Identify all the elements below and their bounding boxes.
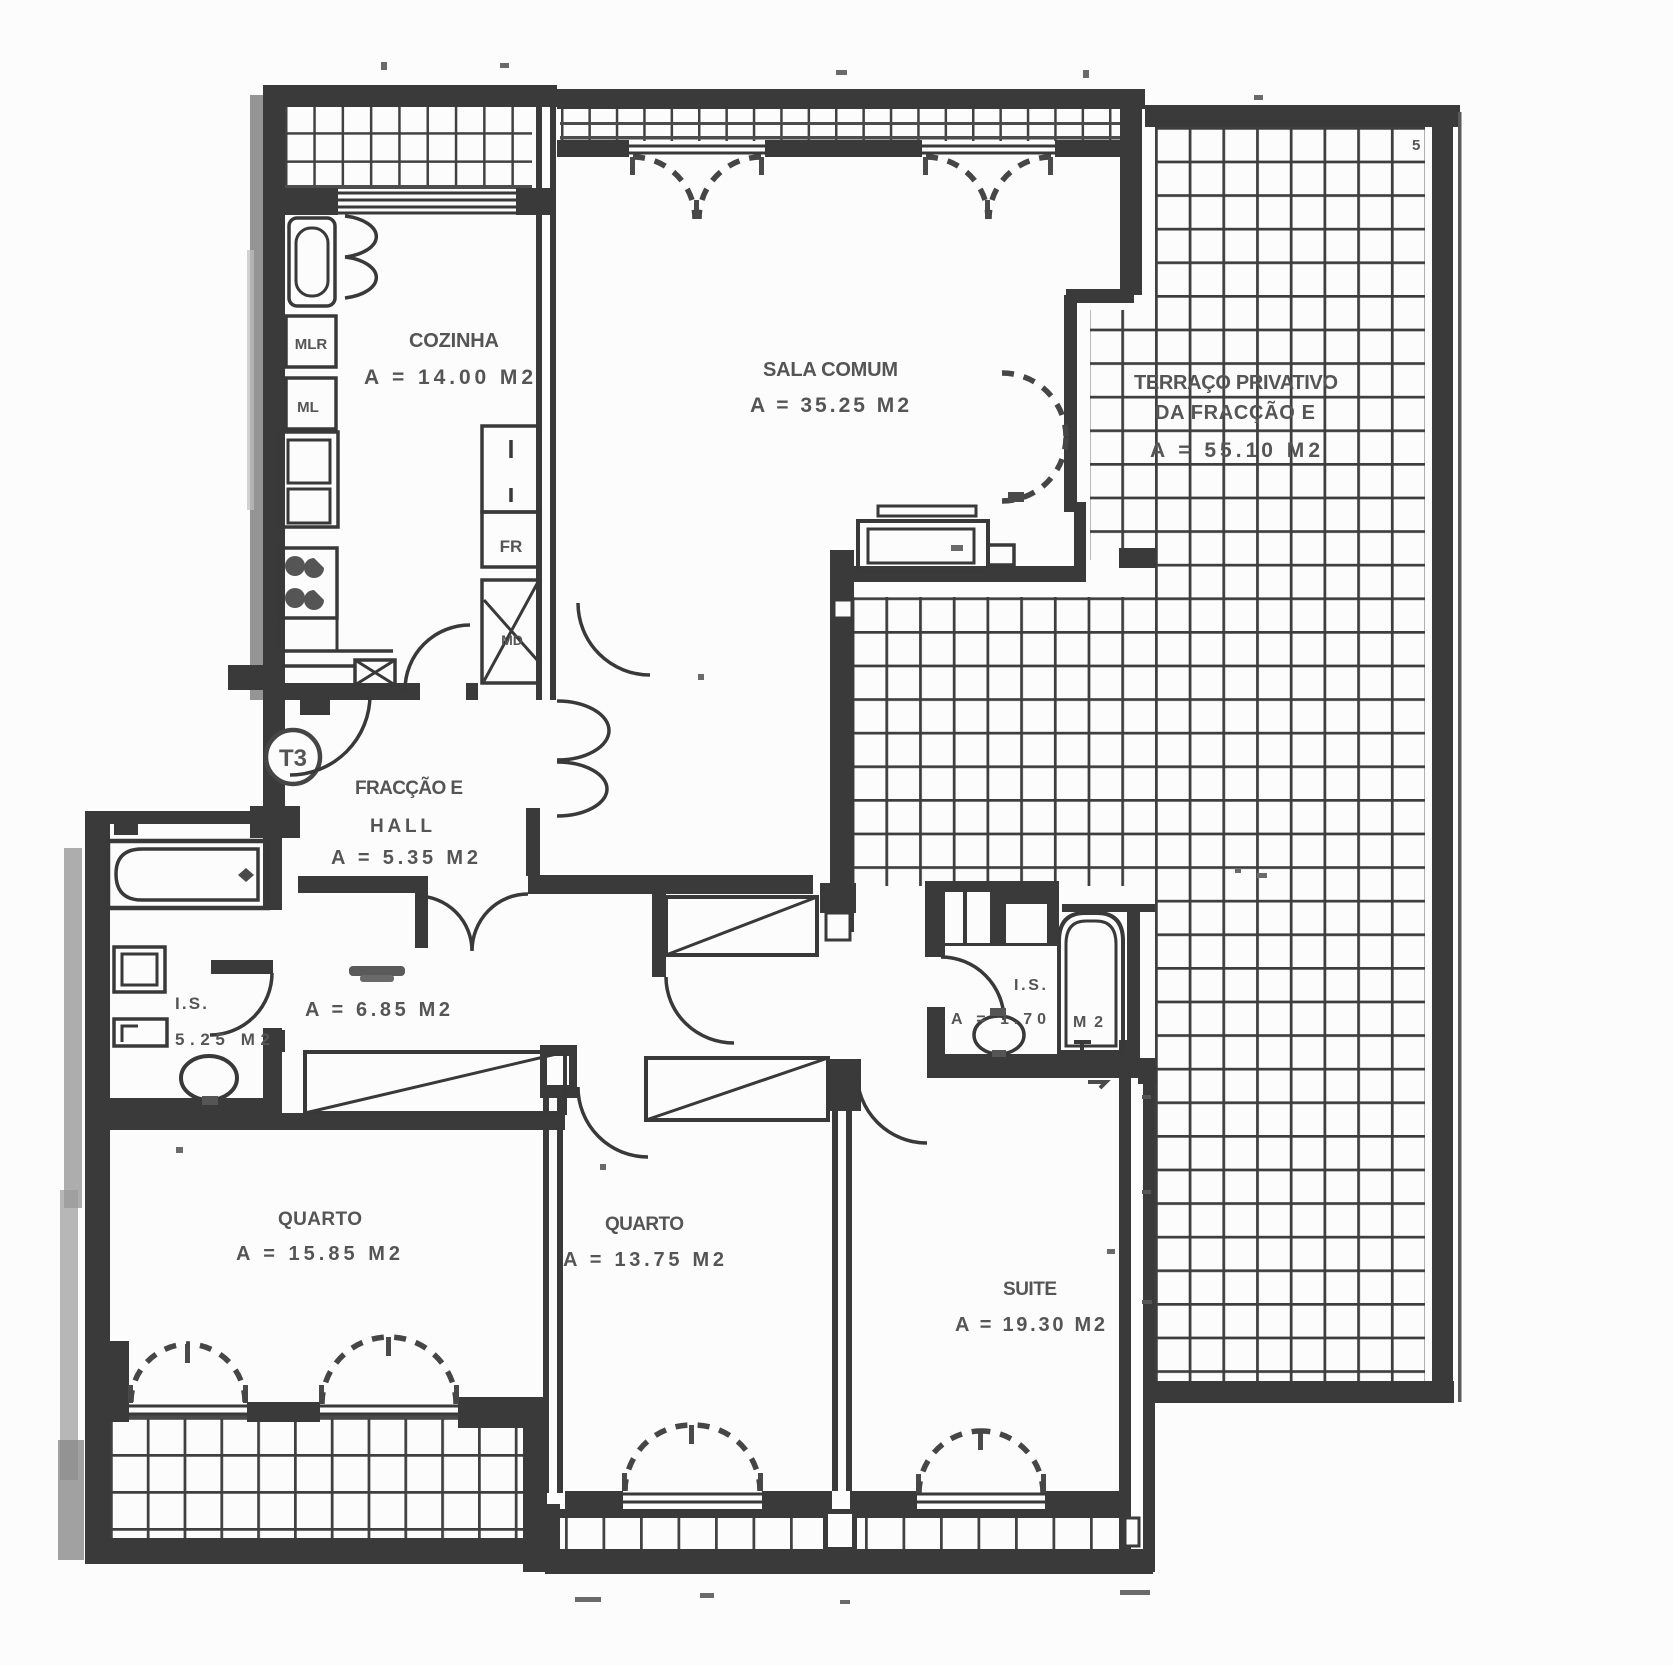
svg-text:FRACÇÃO E: FRACÇÃO E [355, 777, 463, 799]
svg-text:MD: MD [501, 632, 523, 648]
svg-text:T3: T3 [279, 745, 307, 772]
svg-text:TERRAÇO PRIVATIVO: TERRAÇO PRIVATIVO [1134, 372, 1338, 394]
svg-text:QUARTO: QUARTO [278, 1209, 362, 1230]
svg-text:QUARTO: QUARTO [605, 1214, 684, 1235]
svg-text:DA FRACÇÃO E: DA FRACÇÃO E [1155, 401, 1315, 424]
svg-text:COZINHA: COZINHA [409, 330, 499, 352]
svg-text:MLR: MLR [295, 336, 328, 353]
svg-text:HALL: HALL [370, 816, 432, 837]
svg-text:FR: FR [500, 537, 523, 556]
svg-text:5: 5 [1412, 137, 1420, 154]
svg-text:SUITE: SUITE [1003, 1279, 1057, 1300]
svg-text:SALA COMUM: SALA COMUM [763, 359, 898, 381]
svg-text:ML: ML [297, 399, 319, 416]
